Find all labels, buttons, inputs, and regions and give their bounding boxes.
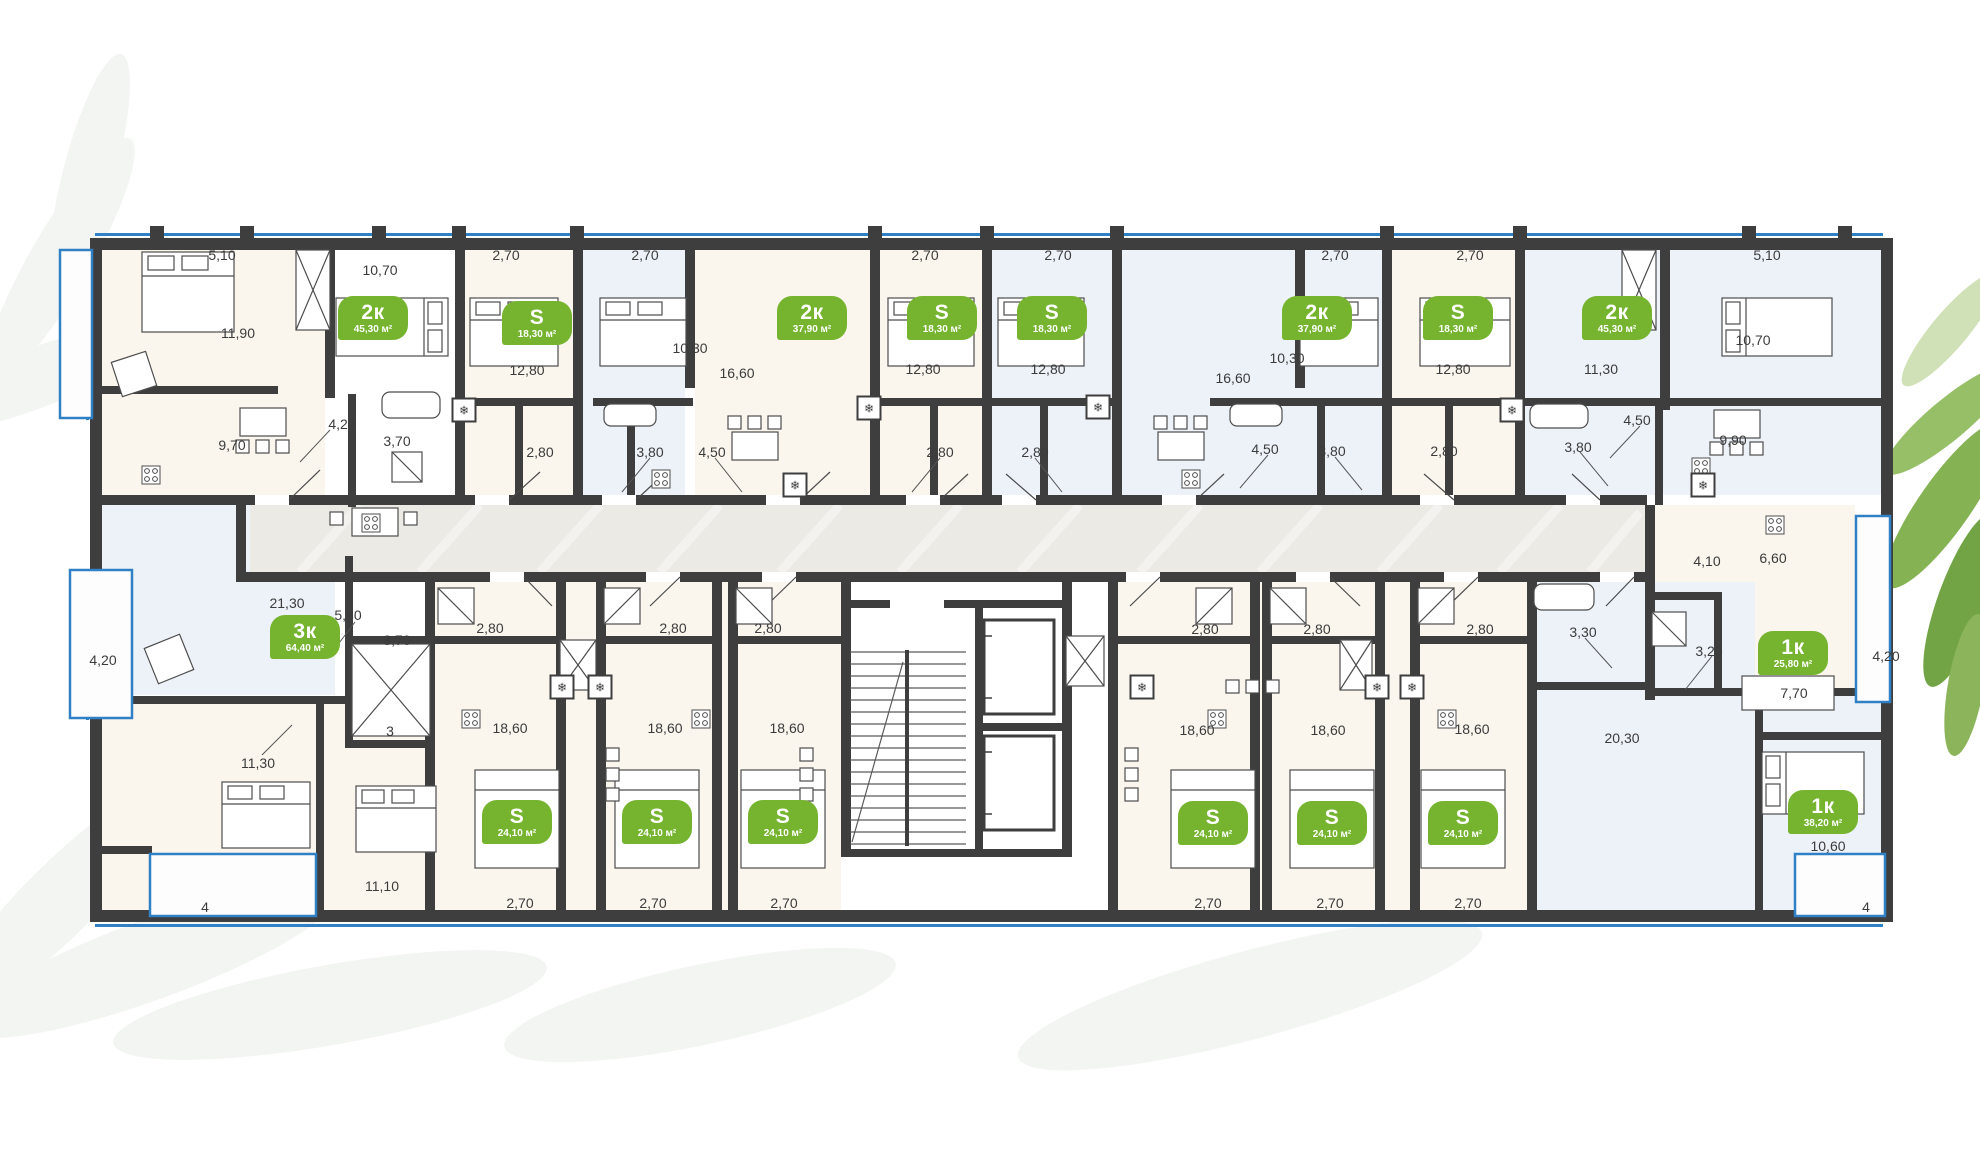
apartment-area-label: 24,10 м² [764,829,803,839]
apartment-type-label: 1к [1811,796,1834,817]
bed [142,252,234,332]
snowflake-icon: ❄ [1086,395,1111,420]
dimension-label: 4,20 [89,652,116,668]
apartment-area-label: 24,10 м² [1444,830,1483,840]
dimension-label: 11,30 [1584,361,1618,377]
dimension-label: 2,70 [492,247,519,263]
apartment-tag[interactable]: S24,10 м² [748,800,818,844]
dimension-label: 16,60 [1215,370,1250,386]
dimension-label: 2,70 [1316,895,1343,911]
apartment-area-label: 45,30 м² [1598,325,1637,335]
dimension-label: 4,50 [1251,441,1278,457]
dimension-label: 4 [1862,899,1870,915]
stools [800,748,813,801]
stools [1125,748,1138,801]
shower [1270,588,1306,624]
dimension-label: 16,60 [719,365,754,381]
apartment-type-label: 1к [1781,637,1804,658]
dimension-label: 5,80 [334,607,361,623]
bed [222,782,310,848]
dimension-label: 4,10 [1693,553,1720,569]
dimension-label: 10,30 [1269,350,1304,366]
dining-set [1154,416,1207,460]
shower [1652,612,1686,646]
apartment-type-label: 2к [361,302,384,323]
dimension-label: 2,70 [631,247,658,263]
apartment-area-label: 37,90 м² [1298,325,1337,335]
snowflake-icon: ❄ [1130,675,1155,700]
dimension-label: 6,60 [1759,550,1786,566]
wall-pier-stubs [150,226,1852,238]
apartment-tag[interactable]: 3к64,40 м² [270,615,340,659]
stools [1226,680,1279,693]
dimension-label: 4,50 [1623,412,1650,428]
apartment-tag[interactable]: 2к37,90 м² [777,296,847,340]
dimension-label: 18,60 [647,720,682,736]
apartment-tag[interactable]: S18,30 м² [1017,296,1087,340]
apartment-type-label: S [510,806,525,827]
apartment-tag[interactable]: 1к25,80 м² [1758,631,1828,675]
dimension-label: 21,30 [269,595,304,611]
shower [736,588,772,624]
dimension-label: 3 [386,723,394,739]
snowflake-icon: ❄ [1400,675,1425,700]
dimension-label: 12,80 [1030,361,1065,377]
snowflake-icon: ❄ [1691,473,1716,498]
dimension-label: 18,60 [492,720,527,736]
apartment-tag[interactable]: 2к37,90 м² [1282,296,1352,340]
dimension-label: 9,70 [218,437,245,453]
dimension-label: 2,70 [1321,247,1348,263]
floorplan-drawing [0,0,1980,1172]
dimension-label: 2,80 [1191,621,1218,637]
dimension-label: 10,70 [1735,332,1770,348]
bathtub [604,404,656,426]
apartment-tag[interactable]: S24,10 м² [622,800,692,844]
apartment-tag[interactable]: S24,10 м² [1178,801,1248,845]
dimension-label: 3,70 [383,632,410,648]
dimension-label: 7,70 [1780,685,1807,701]
shower [1418,588,1454,624]
dimension-label: 2,80 [754,620,781,636]
apartment-area-label: 25,80 м² [1774,660,1813,670]
dimension-label: 3,80 [636,444,663,460]
dimension-label: 2,70 [506,895,533,911]
bathtub [1530,404,1588,428]
apartment-type-label: S [1325,807,1340,828]
dimension-label: 12,80 [1435,361,1470,377]
apartment-type-label: S [650,806,665,827]
apartment-area-label: 45,30 м² [354,325,393,335]
corridor [250,505,1645,572]
apartment-area-label: 24,10 м² [498,829,537,839]
dimension-label: 4,20 [328,416,355,432]
dimension-label: 2,80 [659,620,686,636]
dimension-label: 3,70 [383,433,410,449]
apartment-type-label: 2к [800,302,823,323]
apartment-area-label: 24,10 м² [1194,830,1233,840]
dimension-label: 3,20 [1695,643,1722,659]
bed [356,786,436,852]
dimension-label: 2,80 [1021,444,1048,460]
shower [438,588,474,624]
shower [392,452,422,482]
apartment-tag[interactable]: 1к38,20 м² [1788,790,1858,834]
apartment-tag[interactable]: S18,30 м² [907,296,977,340]
floorplan-page: 2к45,30 м²S18,30 м²2к37,90 м²S18,30 м²S1… [0,0,1980,1172]
wardrobe [1066,636,1104,686]
apartment-type-label: 2к [1305,302,1328,323]
snowflake-icon: ❄ [550,675,575,700]
dimension-label: 18,60 [1454,721,1489,737]
snowflake-icon: ❄ [857,396,882,421]
dimension-label: 2,80 [1303,621,1330,637]
apartment-area-label: 38,20 м² [1804,819,1843,829]
apartment-area-label: 18,30 м² [518,330,557,340]
apartment-tag[interactable]: S24,10 м² [1428,801,1498,845]
snowflake-icon: ❄ [1500,398,1525,423]
bathtub [1230,404,1282,426]
apartment-area-label: 18,30 м² [1439,325,1478,335]
dimension-label: 11,30 [241,755,275,771]
apartment-tag[interactable]: S18,30 м² [1423,296,1493,340]
bathtub [382,392,440,418]
dimension-label: 2,80 [926,444,953,460]
dimension-label: 2,70 [770,895,797,911]
dimension-label: 2,80 [526,444,553,460]
dimension-label: 4 [201,899,209,915]
apartment-area-label: 64,40 м² [286,644,325,654]
dimension-label: 2,70 [1044,247,1071,263]
dimension-label: 2,70 [911,247,938,263]
apartment-area-label: 18,30 м² [923,325,962,335]
apartment-type-label: S [776,806,791,827]
apartment-type-label: S [1456,807,1471,828]
dimension-label: 2,80 [1430,443,1457,459]
dimension-label: 11,90 [221,325,255,341]
apartment-area-label: 24,10 м² [638,829,677,839]
shower [604,588,640,624]
dimension-label: 10,30 [672,340,707,356]
stools [606,748,619,801]
dimension-label: 4,50 [698,444,725,460]
apartment-tag[interactable]: 2к45,30 м² [338,296,408,340]
apartment-tag[interactable]: S24,10 м² [482,800,552,844]
apartment-type-label: 3к [293,621,316,642]
apartment-area-label: 24,10 м² [1313,830,1352,840]
dimension-label: 5,10 [208,247,235,263]
snowflake-icon: ❄ [452,398,477,423]
apartment-tag[interactable]: S18,30 м² [502,301,572,345]
apartment-type-label: S [1045,302,1060,323]
dimension-label: 20,30 [1604,730,1639,746]
snowflake-icon: ❄ [588,675,613,700]
dimension-label: 2,70 [1454,895,1481,911]
dimension-label: 10,60 [1810,838,1845,854]
dimension-label: 5,10 [1753,247,1780,263]
dimension-label: 12,80 [905,361,940,377]
dimension-label: 11,10 [365,878,399,894]
dimension-label: 18,60 [769,720,804,736]
dimension-label: 2,70 [1194,895,1221,911]
bathtub [1534,584,1594,610]
dimension-label: 4,20 [1872,648,1899,664]
dimension-label: 3,80 [1318,443,1345,459]
dining-set [728,416,781,460]
apartment-type-label: 2к [1605,302,1628,323]
apartment-type-label: S [530,307,545,328]
snowflake-icon: ❄ [783,473,808,498]
apartment-type-label: S [1206,807,1221,828]
wardrobe [296,250,330,330]
dimension-label: 10,70 [362,262,397,278]
dimension-label: 3,80 [1564,439,1591,455]
dimension-label: 9,90 [1719,432,1746,448]
dimension-label: 2,80 [476,620,503,636]
shower [1196,588,1232,624]
dimension-label: 18,60 [1310,722,1345,738]
dimension-label: 3,30 [1569,624,1596,640]
apartment-type-label: S [935,302,950,323]
apartment-area-label: 37,90 м² [793,325,832,335]
dimension-label: 18,60 [1179,722,1214,738]
dimension-label: 2,70 [1456,247,1483,263]
apartment-type-label: S [1451,302,1466,323]
dimension-label: 2,70 [639,895,666,911]
apartment-area-label: 18,30 м² [1033,325,1072,335]
dimension-label: 2,80 [1466,621,1493,637]
dimension-label: 12,80 [509,362,544,378]
apartment-tag[interactable]: S24,10 м² [1297,801,1367,845]
floorplan-canvas: 2к45,30 м²S18,30 м²2к37,90 м²S18,30 м²S1… [0,0,1980,1172]
snowflake-icon: ❄ [1365,675,1390,700]
apartment-tag[interactable]: 2к45,30 м² [1582,296,1652,340]
